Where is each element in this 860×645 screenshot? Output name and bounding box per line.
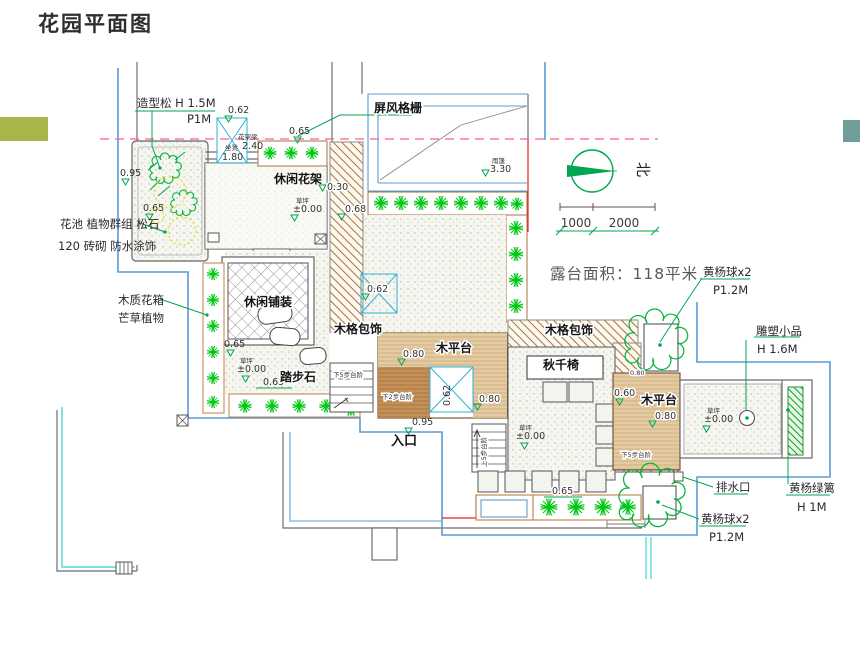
pergola-area (205, 118, 327, 263)
elevation-080: 0.80 (655, 411, 676, 422)
north-compass: 北 (567, 150, 652, 192)
label-wood-deck-east: 木平台 (640, 392, 677, 407)
label-h16m: H 1.6M (757, 342, 798, 356)
scale-seg-2: 2000 (609, 216, 640, 230)
elevation-080: 0.80 (630, 369, 644, 377)
page-title: 花园平面图 (38, 12, 153, 36)
plan-canvas: 花园平面图 (0, 0, 860, 645)
elevation-030: 0.30 (327, 182, 348, 193)
label-down-5-steps: 下5步台阶 (333, 370, 364, 379)
elevation-330: 3.30 (490, 164, 511, 175)
label-boxwood-ball-bottom: 黄杨球x2 (701, 512, 750, 526)
elevation-180: 1.80 (222, 152, 243, 163)
elevation-062: 0.62 (442, 385, 453, 406)
elevation-065: 0.65 (224, 339, 245, 350)
label-p12m-top: P1.2M (713, 283, 748, 297)
scale-seg-1: 1000 (561, 216, 592, 230)
label-entrance: 入口 (391, 434, 417, 449)
label-screen-grille: 屏风格栅 (373, 100, 422, 115)
label-p12m-bottom: P1.2M (709, 530, 744, 544)
stairs-entrance (472, 424, 506, 472)
label-leisure-pergola: 休闲花架 (273, 171, 322, 186)
label-leisure-paving: 休闲铺装 (243, 294, 292, 309)
elevation-065: 0.65 (143, 203, 164, 214)
swing-seat (569, 382, 593, 402)
label-swing-chair: 秋千椅 (543, 357, 579, 372)
boundary-corner-marker (177, 415, 188, 426)
label-down-2-steps: 下2步台阶 (382, 392, 413, 401)
elevation-062: 0.62 (228, 105, 249, 116)
swing-seat (543, 382, 567, 402)
elevation-095: 0.95 (412, 417, 433, 428)
elevation-065: 0.65 (552, 486, 573, 497)
label-wood-planter: 木质花箱 (118, 293, 164, 307)
label-flower-pond: 花池 植物群组 松石 (60, 217, 159, 231)
label-up-5-steps: 上5步台阶 (479, 436, 488, 467)
label-drain: 排水口 (716, 480, 751, 494)
elevation-240: 2.40 (242, 141, 263, 152)
elevation-062: 0.62 (367, 284, 388, 295)
paver-row (478, 471, 606, 492)
label-wood-grid-left: 木格包饰 (333, 321, 382, 336)
building-notch (372, 528, 397, 560)
elevation-080: 0.80 (403, 349, 424, 360)
label-p1m: P1M (187, 112, 211, 126)
label-wood-deck-center: 木平台 (435, 340, 472, 355)
left-accent-bar (0, 117, 48, 141)
label-miscanthus: 芒草植物 (118, 311, 164, 325)
elevation-000: ±0.00 (704, 414, 733, 425)
page-accents (0, 117, 860, 142)
label-brick-waterproof: 120 砖砌 防水涂饰 (58, 239, 156, 253)
elevation-080: 0.80 (479, 394, 500, 405)
label-boxwood-hedge: 黄杨绿篱 (789, 481, 835, 495)
elevation-000: ±0.00 (516, 431, 545, 442)
elevation-068: 0.68 (345, 204, 366, 215)
label-pergola-beam: 花架梁 (238, 132, 258, 141)
terrace-area-note: 露台面积：118平米 (550, 265, 698, 283)
label-stepping-stones: 踏步石 (280, 369, 316, 384)
elevation-000: ±0.00 (237, 364, 266, 375)
bottom-planters (476, 495, 641, 520)
label-down-5-steps: 下5步台阶 (621, 450, 652, 459)
label-boxwood-ball-top: 黄杨球x2 (703, 265, 752, 279)
right-accent-square (843, 120, 860, 142)
drain-square (674, 472, 683, 481)
label-bench: 坐凳 (225, 143, 239, 152)
elevation-095: 0.95 (120, 168, 141, 179)
label-sculpture: 雕塑小品 (756, 324, 802, 338)
elevation-060: 0.60 (614, 388, 635, 399)
elevation-065: 0.65 (289, 126, 310, 137)
north-label: 北 (634, 162, 652, 177)
label-wood-grid-right: 木格包饰 (544, 322, 593, 337)
label-h1m: H 1M (797, 500, 827, 514)
label-shaped-pine: 造型松 H 1.5M (137, 96, 216, 110)
boxwood-hedge (788, 387, 803, 455)
elevation-000: ±0.00 (293, 204, 322, 215)
scale-bar: 1000 2000 (556, 203, 659, 235)
